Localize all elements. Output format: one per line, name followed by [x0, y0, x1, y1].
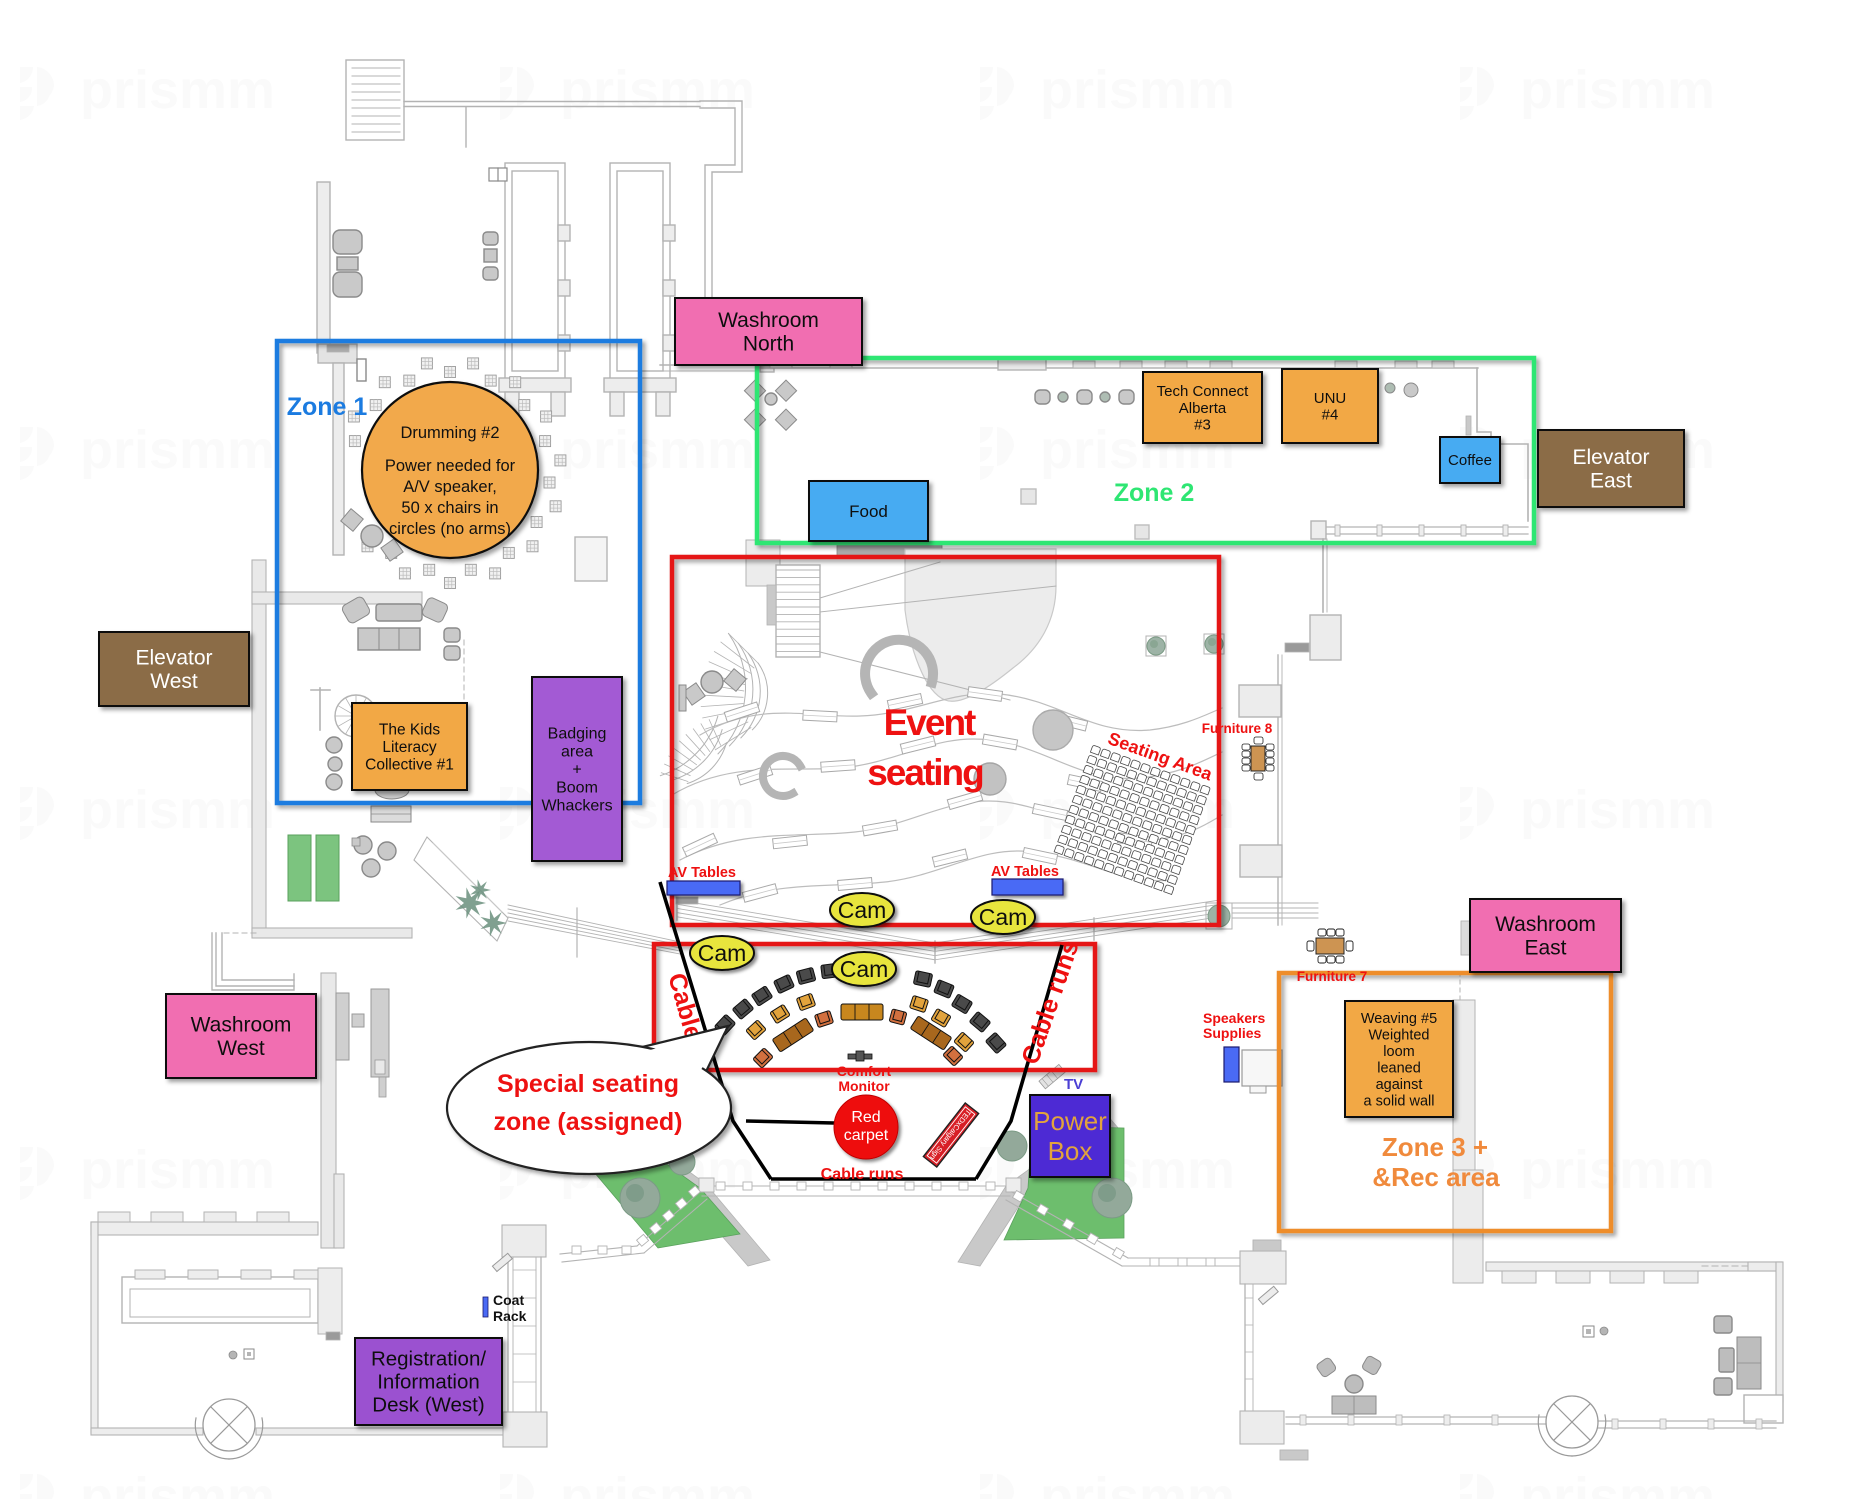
svg-text:Rack: Rack — [493, 1308, 527, 1324]
svg-text:Badging: Badging — [548, 726, 607, 743]
svg-text:Monitor: Monitor — [838, 1078, 890, 1094]
svg-text:Boom: Boom — [556, 780, 598, 797]
svg-text:Weighted: Weighted — [1369, 1027, 1430, 1043]
svg-text:Washroom: Washroom — [191, 1014, 292, 1037]
svg-text:Collective #1: Collective #1 — [365, 756, 454, 773]
svg-text:#4: #4 — [1322, 407, 1339, 424]
svg-text:prismm: prismm — [1520, 1467, 1715, 1499]
svg-text:prismm: prismm — [80, 1140, 275, 1200]
svg-text:Elevator: Elevator — [1572, 446, 1649, 469]
svg-text:UNU: UNU — [1314, 390, 1347, 407]
svg-text:prismm: prismm — [1040, 60, 1235, 120]
svg-text:Zone 2: Zone 2 — [1114, 479, 1195, 507]
svg-text:Coat: Coat — [493, 1292, 524, 1308]
svg-text:Information: Information — [377, 1371, 480, 1394]
svg-text:against: against — [1376, 1077, 1423, 1093]
svg-text:Zone 3 +: Zone 3 + — [1382, 1132, 1488, 1162]
svg-text:#3: #3 — [1194, 417, 1211, 434]
svg-text:Tech Connect: Tech Connect — [1157, 383, 1250, 400]
svg-text:AV Tables: AV Tables — [668, 865, 736, 881]
svg-text:prismm: prismm — [1520, 1140, 1715, 1200]
svg-text:Speakers: Speakers — [1203, 1010, 1265, 1026]
svg-text:prismm: prismm — [1040, 1467, 1235, 1499]
svg-text:A/V speaker,: A/V speaker, — [403, 478, 497, 496]
svg-text:seating: seating — [867, 752, 983, 793]
svg-text:prismm: prismm — [80, 1467, 275, 1499]
svg-text:Registration/: Registration/ — [371, 1348, 486, 1371]
svg-text:Desk (West): Desk (West) — [372, 1394, 484, 1417]
svg-text:Box: Box — [1048, 1136, 1093, 1166]
svg-text:Special seating: Special seating — [497, 1070, 679, 1098]
svg-text:Supplies: Supplies — [1203, 1025, 1262, 1041]
svg-text:TV: TV — [1064, 1076, 1083, 1093]
svg-text:prismm: prismm — [1520, 60, 1715, 120]
svg-text:Furniture 8: Furniture 8 — [1202, 721, 1273, 736]
svg-text:zone (assigned): zone (assigned) — [494, 1108, 683, 1136]
svg-text:AV Tables: AV Tables — [991, 864, 1059, 880]
svg-text:Red: Red — [851, 1109, 880, 1126]
svg-text:Washroom: Washroom — [1495, 913, 1596, 936]
svg-text:Zone 1: Zone 1 — [287, 393, 368, 421]
svg-text:East: East — [1524, 937, 1566, 960]
svg-text:prismm: prismm — [560, 420, 755, 480]
svg-text:Power: Power — [1033, 1106, 1107, 1136]
svg-text:Alberta: Alberta — [1179, 400, 1227, 417]
svg-text:prismm: prismm — [80, 780, 275, 840]
svg-text:&Rec area: &Rec area — [1372, 1162, 1500, 1192]
svg-text:West: West — [217, 1037, 265, 1060]
svg-text:The Kids: The Kids — [379, 722, 440, 739]
svg-text:circles (no arms): circles (no arms) — [389, 520, 511, 538]
svg-text:Literacy: Literacy — [382, 739, 437, 756]
svg-text:Weaving #5: Weaving #5 — [1361, 1011, 1437, 1027]
svg-text:prismm: prismm — [1520, 780, 1715, 840]
svg-text:50 x chairs in: 50 x chairs in — [401, 499, 498, 517]
svg-text:prismm: prismm — [80, 420, 275, 480]
svg-text:Coffee: Coffee — [1448, 452, 1492, 469]
svg-text:Cam: Cam — [840, 956, 889, 982]
svg-text:prismm: prismm — [560, 60, 755, 120]
svg-text:Drumming #2: Drumming #2 — [400, 424, 499, 442]
svg-text:Power needed for: Power needed for — [385, 457, 516, 475]
svg-text:Washroom: Washroom — [718, 309, 819, 332]
svg-text:Elevator: Elevator — [135, 647, 212, 670]
svg-text:North: North — [743, 333, 794, 356]
svg-text:Furniture 7: Furniture 7 — [1297, 969, 1368, 984]
svg-text:area: area — [561, 744, 593, 761]
svg-text:Whackers: Whackers — [541, 798, 612, 815]
svg-text:Food: Food — [849, 502, 888, 521]
svg-text:West: West — [150, 670, 198, 693]
svg-text:prismm: prismm — [80, 60, 275, 120]
svg-text:carpet: carpet — [844, 1127, 889, 1144]
svg-text:Cam: Cam — [979, 904, 1028, 930]
svg-text:Cam: Cam — [838, 897, 887, 923]
svg-text:+: + — [572, 762, 581, 779]
svg-text:Cam: Cam — [698, 940, 747, 966]
svg-text:loom: loom — [1383, 1044, 1414, 1060]
svg-text:Event: Event — [884, 702, 976, 743]
svg-text:Comfort: Comfort — [837, 1063, 892, 1079]
svg-text:Cable runs: Cable runs — [821, 1166, 904, 1183]
svg-text:leaned: leaned — [1377, 1060, 1421, 1076]
svg-text:prismm: prismm — [560, 1467, 755, 1499]
svg-text:a solid wall: a solid wall — [1364, 1093, 1435, 1109]
svg-text:East: East — [1590, 470, 1632, 493]
